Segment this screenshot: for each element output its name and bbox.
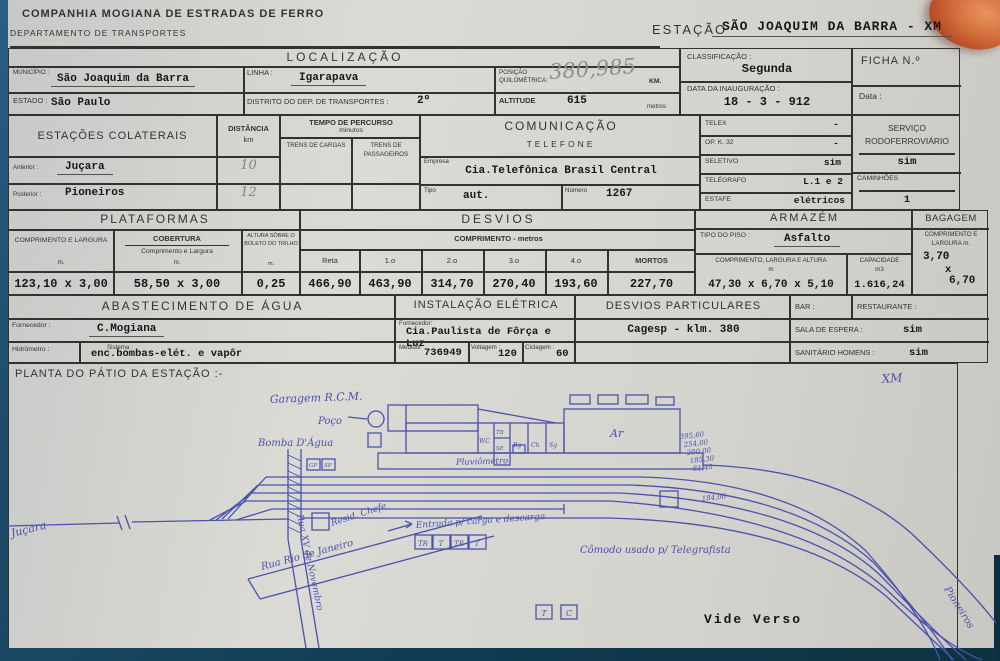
plat-c2-sub: Comprimento e Largura xyxy=(113,248,241,255)
divider xyxy=(859,153,955,155)
company-name: COMPANHIA MOGIANA DE ESTRADAS DE FERRO xyxy=(22,8,324,20)
hidrometro-label: Hidrômetro : xyxy=(12,346,49,353)
sala-espera-label: SALA DE ESPERA : xyxy=(795,325,863,334)
divider xyxy=(125,245,229,246)
tempo-title: TEMPO DE PERCURSO xyxy=(281,118,421,127)
altitude-unit: metros xyxy=(647,103,666,110)
section-eletrica: INSTALAÇÃO ELÉTRICA Fornecedor: Cia.Paul… xyxy=(395,295,575,363)
altitude-value: 615 xyxy=(567,95,587,107)
restaurante-label: RESTAURANTE : xyxy=(857,302,916,311)
anterior-distance: 10 xyxy=(216,158,281,173)
piso-label: TIPO DO PISO : xyxy=(700,232,750,239)
divider xyxy=(681,81,853,83)
divider xyxy=(9,271,301,273)
divider xyxy=(522,341,524,364)
armazem-dim-label: COMPRIMENTO, LARGURA E ALTURA xyxy=(696,257,846,264)
armazem-dim-unit: m xyxy=(696,266,846,273)
divider xyxy=(696,253,913,255)
sistema-value: enc.bombas-elét. e vapôr xyxy=(91,348,242,360)
telegrafo-label: TELÉGRAFO xyxy=(705,177,746,184)
comunicacao-title: COMUNICAÇÃO xyxy=(421,119,701,133)
divider xyxy=(494,66,496,116)
inauguracao-label: DATA DA INAUGURAÇÃO : xyxy=(687,84,780,93)
section-tempo-percurso: TEMPO DE PERCURSO minutos TRENS DE CARGA… xyxy=(280,115,420,210)
eletrica-title: INSTALAÇÃO ELÉTRICA xyxy=(396,299,576,311)
armazem-dim-value: 47,30 x 6,70 x 5,10 xyxy=(696,279,846,291)
plat-c1-value: 123,10 x 3,00 xyxy=(9,277,113,291)
telex-value: - xyxy=(833,119,839,130)
capacidade-label: CAPACIDADE xyxy=(846,257,913,264)
bagagem-l2: 6,70 xyxy=(949,275,975,287)
armazem-title: ARMAZÉM xyxy=(696,212,913,224)
desvios-val-1: 463,90 xyxy=(359,277,421,291)
desvios-val-3: 270,40 xyxy=(483,277,545,291)
estafe-label: ESTAFE xyxy=(705,196,731,203)
section-bagagem: BAGAGEM COMPRIMENTO E LARGURA m. 3,70 x … xyxy=(912,210,988,295)
colaterais-title: ESTAÇÕES COLATERAIS xyxy=(9,130,216,142)
altitude-label: ALTITUDE xyxy=(499,96,536,105)
sanitario-label: SANITÁRIO HOMENS : xyxy=(795,348,875,357)
vide-verso: Vide Verso xyxy=(704,612,802,627)
plat-c2-unit: m. xyxy=(113,259,241,266)
desvios-col-1: 1.o xyxy=(359,256,421,265)
section-desvios: DESVIOS COMPRIMENTO - metros Reta 1.o 2.… xyxy=(300,210,695,295)
desvios-val-2: 314,70 xyxy=(421,277,483,291)
telex-label: TELEX xyxy=(705,120,727,127)
anterior-value: Juçara xyxy=(57,161,113,175)
posterior-distance: 12 xyxy=(216,185,281,200)
sala-espera-value: sim xyxy=(903,324,922,336)
rodo-title: SERVIÇO RODOFERROVIÁRIO xyxy=(855,122,959,148)
desvios-val-reta: 466,90 xyxy=(301,277,359,291)
distancia-unit: km xyxy=(216,135,281,144)
section-armazem: ARMAZÉM TIPO DO PISO : Asfalto COMPRIMEN… xyxy=(695,210,912,295)
distancia-label: DISTÂNCIA xyxy=(216,124,281,133)
divider xyxy=(9,92,681,94)
section-classificacao: CLASSIFICAÇÃO : Segunda DATA DA INAUGURA… xyxy=(680,48,852,115)
desvios-col-3: 3.o xyxy=(483,256,545,265)
desvios-particulares-title: DESVIOS PARTICULARES xyxy=(576,300,791,312)
classificacao-label: CLASSIFICAÇÃO : xyxy=(687,52,751,61)
desvios-col-mortos: MORTOS xyxy=(607,256,696,265)
divider xyxy=(859,190,955,192)
divider xyxy=(701,154,853,156)
bagagem-l1: 3,70 xyxy=(923,251,949,263)
divider xyxy=(791,318,989,320)
classificacao-value: Segunda xyxy=(681,62,853,76)
empresa-value: Cia.Telefônica Brasil Central xyxy=(421,165,701,177)
planta-title: PLANTA DO PÁTIO DA ESTAÇÃO :- xyxy=(15,368,223,380)
desvios-title: DESVIOS xyxy=(301,212,696,226)
estado-value: São Paulo xyxy=(51,97,110,109)
opk32-label: OP. K. 32 xyxy=(705,139,734,146)
tipo-value: aut. xyxy=(463,190,489,202)
linha-value: Igarapava xyxy=(291,72,366,86)
divider xyxy=(281,183,421,185)
plat-c2-value: 58,50 x 3,00 xyxy=(113,277,241,291)
divider xyxy=(701,192,853,194)
estado-label: ESTADO : xyxy=(13,96,47,105)
divider xyxy=(79,341,81,364)
voltagem-value: 120 xyxy=(498,348,517,360)
ciclagem-label: Ciclagem : xyxy=(525,344,554,351)
agua-fornecedor-label: Fornecedor : xyxy=(12,322,51,329)
opk32-value: - xyxy=(833,138,839,149)
telegrafo-value: L.1 e 2 xyxy=(803,176,843,187)
agua-fornecedor-value: C.Mogiana xyxy=(89,323,164,337)
divider xyxy=(913,228,989,230)
posterior-value: Pioneiros xyxy=(65,187,124,199)
plat-c3-label: ALTURA SÔBRE O BOLETO DO TRILHO xyxy=(243,232,299,249)
bagagem-title: BAGAGEM xyxy=(913,213,989,224)
inauguracao-value: 18 - 3 - 912 xyxy=(681,95,853,109)
numero-label: Número xyxy=(565,187,587,194)
station-name-typed: SÃO JOAQUIM DA BARRA - XM xyxy=(712,19,952,37)
piso-value: Asfalto xyxy=(774,233,840,247)
section-localizacao: LOCALIZAÇÃO MUNICÍPIO : São Joaquim da B… xyxy=(8,48,680,115)
section-colaterais: ESTAÇÕES COLATERAIS DISTÂNCIA km Anterio… xyxy=(8,115,280,210)
trens-passageiros-header: TRENS DE PASSAGEIROS xyxy=(355,142,417,159)
divider xyxy=(301,271,696,273)
divider xyxy=(696,228,913,230)
desvios-col-reta: Reta xyxy=(301,256,359,265)
section-desvios-particulares: DESVIOS PARTICULARES Cagesp - klm. 380 xyxy=(575,295,790,363)
section-agua: ABASTECIMENTO DE ÁGUA Fornecedor : C.Mog… xyxy=(8,295,395,363)
divider xyxy=(701,135,853,137)
section-comunicacao: COMUNICAÇÃO TELEFONE Empresa Cia.Telefôn… xyxy=(420,115,700,210)
seletivo-value: sim xyxy=(824,157,841,168)
divider xyxy=(421,156,701,158)
divider xyxy=(396,341,576,343)
telefone-subtitle: TELEFONE xyxy=(421,139,701,149)
divider xyxy=(701,173,853,175)
posicao-label: POSIÇÃO QUILOMÉTRICA: xyxy=(499,69,555,85)
bar-label: BAR : xyxy=(795,302,815,311)
desvios-col-2: 2.o xyxy=(421,256,483,265)
department-name: DEPARTAMENTO DE TRANSPORTES xyxy=(10,28,186,38)
rodo-value: sim xyxy=(853,156,961,168)
seletivo-label: SELETIVO xyxy=(705,158,738,165)
ficha-data-label: Data : xyxy=(859,91,882,101)
divider xyxy=(9,318,396,320)
numero-value: 1267 xyxy=(606,188,632,200)
ficha-label: FICHA N.º xyxy=(861,55,920,67)
municipio-label: MUNICÍPIO : xyxy=(13,69,49,76)
divider xyxy=(576,318,791,320)
distrito-value: 2º xyxy=(417,95,430,107)
section-servicos: BAR : RESTAURANTE : SALA DE ESPERA : sim… xyxy=(790,295,988,363)
section-ficha: FICHA N.º Data : xyxy=(852,48,960,115)
section-telex: TELEX - OP. K. 32 - SELETIVO sim TELÉGRA… xyxy=(700,115,852,210)
plat-c1-unit: m. xyxy=(13,259,109,266)
divider xyxy=(301,229,696,231)
divider xyxy=(243,66,245,116)
divider xyxy=(468,341,470,364)
photo-dark-edge xyxy=(994,555,1000,661)
posicao-unit: KM. xyxy=(649,78,661,85)
plat-c1-label: COMPRIMENTO E LARGURA xyxy=(13,236,109,246)
voltagem-label: Voltagem : xyxy=(471,344,500,351)
divider xyxy=(351,137,353,211)
desvios-subtitle: COMPRIMENTO - metros xyxy=(301,234,696,243)
medidor-value: 736949 xyxy=(424,347,462,359)
photo-of-station-record-card: COMPANHIA MOGIANA DE ESTRADAS DE FERRO D… xyxy=(0,0,1000,661)
tempo-unit: minutos xyxy=(281,127,421,134)
divider xyxy=(853,172,961,174)
divider xyxy=(576,341,791,343)
linha-label: LINHA : xyxy=(247,68,273,77)
distrito-label: DISTRITO DO DEP. DE TRANSPORTES : xyxy=(247,97,389,106)
plat-c2-label: COBERTURA xyxy=(113,234,241,243)
agua-title: ABASTECIMENTO DE ÁGUA xyxy=(9,299,396,313)
tipo-label: Tipo xyxy=(424,187,436,194)
section-planta: PLANTA DO PÁTIO DA ESTAÇÃO :- Vide Verso xyxy=(8,363,958,648)
bagagem-dim-label: COMPRIMENTO E LARGURA m. xyxy=(915,231,987,248)
section-plataformas: PLATAFORMAS COMPRIMENTO E LARGURA m. COB… xyxy=(8,210,300,295)
caminhoes-value: 1 xyxy=(853,194,961,206)
posterior-label: Posterior : xyxy=(13,191,41,198)
divider xyxy=(9,341,396,343)
divider xyxy=(791,341,989,343)
posicao-value-handwritten: 380,985 xyxy=(548,54,636,84)
desvios-val-mortos: 227,70 xyxy=(607,277,696,291)
desvios-particulares-value: Cagesp - klm. 380 xyxy=(576,324,791,336)
empresa-label: Empresa xyxy=(424,158,449,165)
divider xyxy=(851,296,853,318)
caminhoes-label: CAMINHÕES xyxy=(857,175,898,182)
estafe-value: elétricos xyxy=(794,195,845,206)
plat-c3-value: 0,25 xyxy=(241,277,301,291)
capacidade-value: 1.616,24 xyxy=(846,279,913,291)
plataformas-title: PLATAFORMAS xyxy=(9,212,301,226)
medidor-label: Medidor xyxy=(399,344,421,351)
divider xyxy=(853,85,961,87)
desvios-val-4: 193,60 xyxy=(545,277,607,291)
municipio-value: São Joaquim da Barra xyxy=(51,73,195,87)
plat-c3-unit: m. xyxy=(243,261,299,267)
section-rodoferroviario: SERVIÇO RODOFERROVIÁRIO sim CAMINHÕES 1 xyxy=(852,115,960,210)
desvios-col-4: 4.o xyxy=(545,256,607,265)
divider xyxy=(9,229,301,231)
divider xyxy=(561,184,563,211)
anterior-label: Anterior : xyxy=(13,164,38,171)
capacidade-unit: m3 xyxy=(846,266,913,273)
sanitario-value: sim xyxy=(909,347,928,359)
ciclagem-value: 60 xyxy=(556,348,569,360)
trens-cargas-header: TRENS DE CARGAS xyxy=(285,142,347,151)
